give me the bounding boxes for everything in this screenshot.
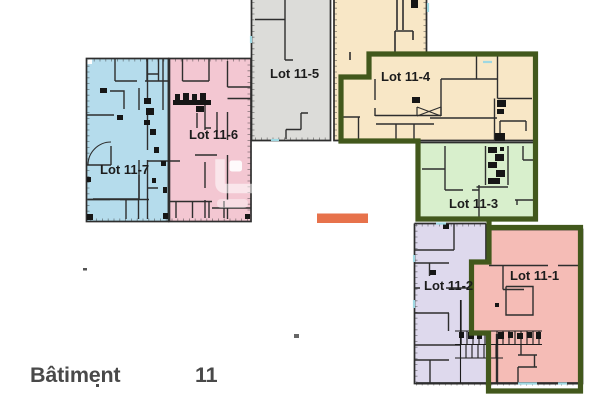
svg-text:11: 11 <box>195 363 218 387</box>
svg-text:Lot 11-4: Lot 11-4 <box>381 69 431 84</box>
svg-text:Lot 11-6: Lot 11-6 <box>189 127 238 142</box>
svg-text:Bâtiment: Bâtiment <box>30 363 120 387</box>
svg-text:Lot 11-2: Lot 11-2 <box>424 278 473 293</box>
svg-text:Lot 11-1: Lot 11-1 <box>510 268 559 283</box>
svg-text:Lot 11-3: Lot 11-3 <box>449 196 498 211</box>
svg-text:Lot 11-7: Lot 11-7 <box>100 162 149 177</box>
svg-text:Lot 11-5: Lot 11-5 <box>270 66 319 81</box>
